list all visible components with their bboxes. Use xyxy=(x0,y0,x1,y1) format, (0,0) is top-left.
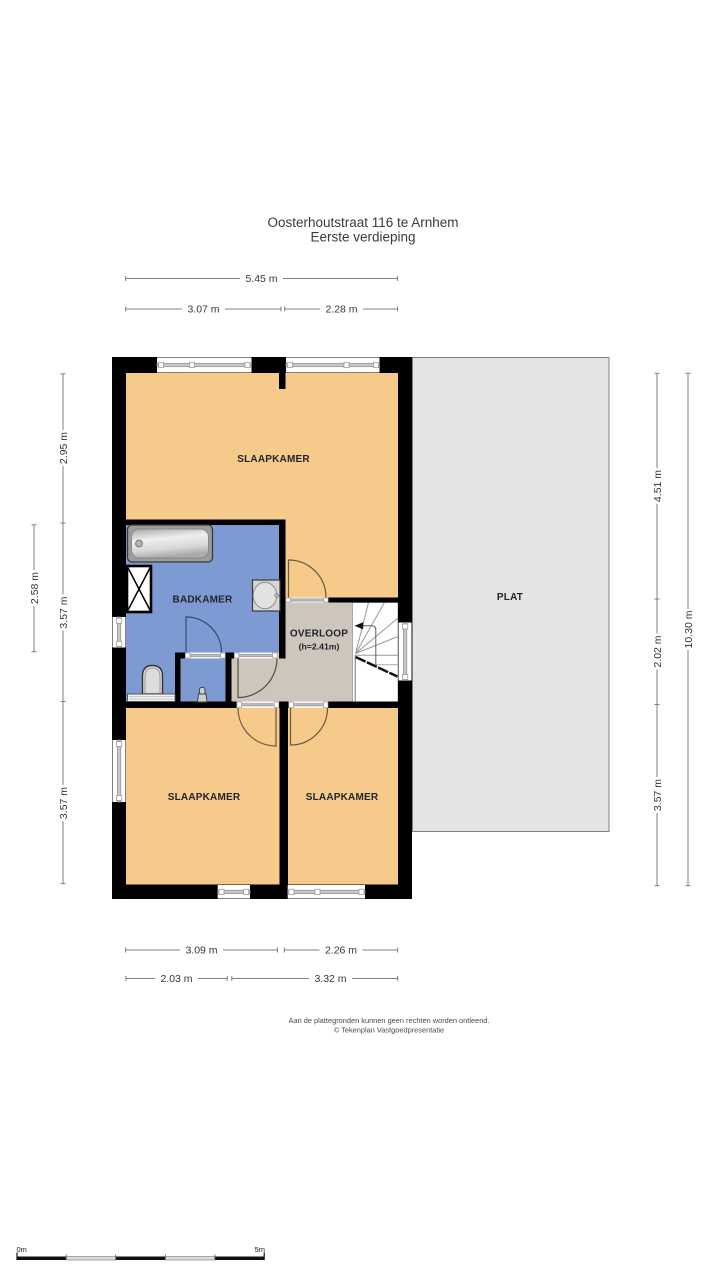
svg-text:3.57 m: 3.57 m xyxy=(58,596,70,628)
svg-text:Oosterhoutstraat 116 te Arnhem: Oosterhoutstraat 116 te Arnhem xyxy=(267,215,458,230)
svg-text:2.95 m: 2.95 m xyxy=(58,432,70,464)
svg-text:BADKAMER: BADKAMER xyxy=(173,595,234,606)
svg-text:3.32 m: 3.32 m xyxy=(314,973,346,985)
svg-text:2.28 m: 2.28 m xyxy=(325,304,357,316)
svg-text:5m: 5m xyxy=(255,1245,265,1254)
svg-text:SLAAPKAMER: SLAAPKAMER xyxy=(306,792,379,803)
svg-text:2.26 m: 2.26 m xyxy=(325,945,357,957)
svg-text:2.02 m: 2.02 m xyxy=(652,635,664,667)
svg-text:OVERLOOP: OVERLOOP xyxy=(290,629,348,640)
svg-text:4.51 m: 4.51 m xyxy=(652,470,664,502)
svg-text:3.07 m: 3.07 m xyxy=(187,304,219,316)
svg-text:5.45 m: 5.45 m xyxy=(245,273,277,285)
svg-text:10.30 m: 10.30 m xyxy=(683,610,695,648)
svg-text:0m: 0m xyxy=(17,1245,27,1254)
svg-text:2.58 m: 2.58 m xyxy=(29,572,41,604)
svg-text:3.57 m: 3.57 m xyxy=(58,787,70,819)
svg-text:© Tekenplan Vastgoedpresentati: © Tekenplan Vastgoedpresentatie xyxy=(334,1026,444,1035)
svg-text:SLAAPKAMER: SLAAPKAMER xyxy=(237,454,310,465)
svg-text:3.09 m: 3.09 m xyxy=(185,945,217,957)
svg-text:(h=2.41m): (h=2.41m) xyxy=(299,642,340,652)
svg-text:2.03 m: 2.03 m xyxy=(160,973,192,985)
svg-text:SLAAPKAMER: SLAAPKAMER xyxy=(168,792,241,803)
svg-text:Aan de plattegronden kunnen ge: Aan de plattegronden kunnen geen rechten… xyxy=(289,1016,490,1025)
svg-text:3.57 m: 3.57 m xyxy=(652,779,664,811)
svg-text:PLAT: PLAT xyxy=(497,592,523,603)
svg-text:Eerste verdieping: Eerste verdieping xyxy=(310,230,415,245)
